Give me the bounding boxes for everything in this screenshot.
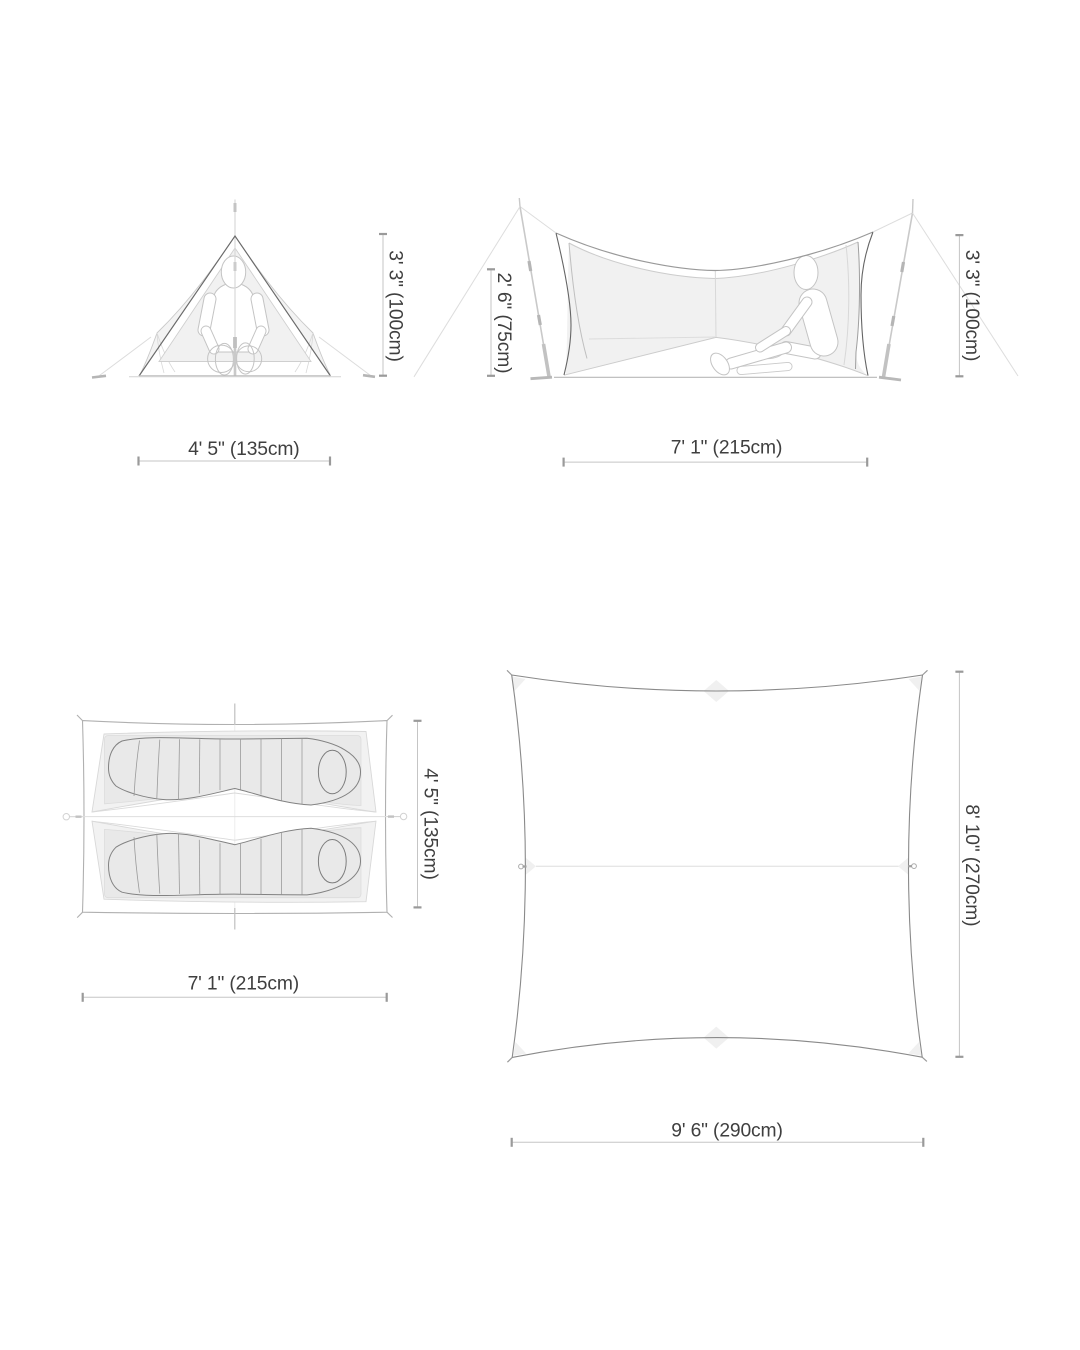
svg-text:4' 5" (135cm): 4' 5" (135cm) <box>420 768 441 879</box>
svg-text:8' 10" (270cm): 8' 10" (270cm) <box>961 804 982 926</box>
svg-text:3' 3" (100cm): 3' 3" (100cm) <box>385 250 406 361</box>
svg-text:7' 1" (215cm): 7' 1" (215cm) <box>671 437 782 458</box>
svg-text:4' 5" (135cm): 4' 5" (135cm) <box>188 439 299 460</box>
svg-text:2' 6" (75cm): 2' 6" (75cm) <box>493 273 514 374</box>
svg-text:3' 3" (100cm): 3' 3" (100cm) <box>961 250 982 361</box>
svg-text:9' 6" (290cm): 9' 6" (290cm) <box>671 1121 782 1142</box>
svg-text:7' 1" (215cm): 7' 1" (215cm) <box>188 973 299 994</box>
